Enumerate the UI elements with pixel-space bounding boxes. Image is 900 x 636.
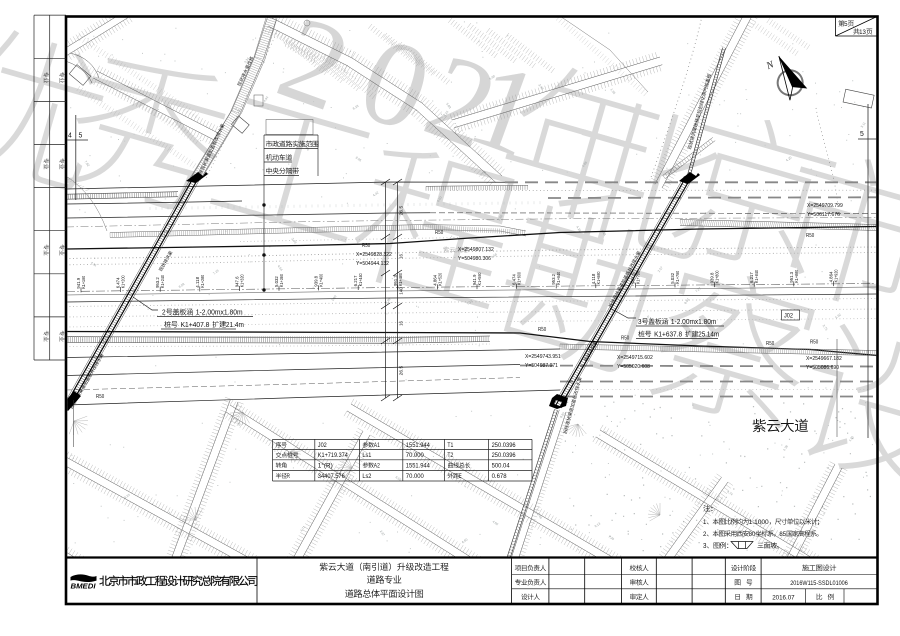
svg-text:K1+407.8: K1+407.8 bbox=[181, 320, 210, 329]
svg-text:0.678: 0.678 bbox=[492, 474, 508, 480]
svg-text:X=2549709.799: X=2549709.799 bbox=[807, 203, 843, 209]
svg-text:A2: A2 bbox=[374, 463, 381, 469]
svg-text:Y=504980.306: Y=504980.306 bbox=[458, 256, 491, 262]
svg-text:Y=505086.690: Y=505086.690 bbox=[806, 365, 839, 371]
svg-text:T1: T1 bbox=[447, 443, 454, 449]
svg-text:K1+240: K1+240 bbox=[160, 275, 165, 288]
svg-text:70.000: 70.000 bbox=[406, 474, 425, 480]
svg-text:Ls1: Ls1 bbox=[362, 453, 372, 459]
svg-text:80: 80 bbox=[749, 531, 756, 538]
svg-text:R50: R50 bbox=[806, 233, 814, 239]
svg-text:500.04: 500.04 bbox=[492, 463, 511, 469]
svg-text:70.000: 70.000 bbox=[406, 453, 425, 459]
svg-text:K1+920: K1+920 bbox=[833, 269, 838, 282]
svg-text:K1+840: K1+840 bbox=[754, 270, 759, 283]
svg-text:2016.07: 2016.07 bbox=[772, 594, 795, 601]
svg-text:2: 2 bbox=[703, 531, 707, 538]
svg-text:Y=505020.608: Y=505020.608 bbox=[617, 364, 650, 370]
svg-text:K1+680: K1+680 bbox=[596, 271, 601, 284]
svg-text:Y=504944.132: Y=504944.132 bbox=[356, 261, 389, 267]
svg-text:5: 5 bbox=[79, 131, 83, 140]
svg-text:X=2549828.322: X=2549828.322 bbox=[356, 252, 392, 258]
svg-text:R50: R50 bbox=[362, 243, 370, 249]
svg-text:K1+480: K1+480 bbox=[398, 273, 403, 286]
svg-text:Y=506117.676: Y=506117.676 bbox=[807, 212, 840, 218]
svg-text:2016W115-SSDL01006: 2016W115-SSDL01006 bbox=[790, 580, 848, 587]
svg-text:K1+600: K1+600 bbox=[517, 272, 522, 285]
svg-text:13: 13 bbox=[859, 29, 866, 36]
svg-text:5: 5 bbox=[860, 129, 864, 138]
svg-text:26.5: 26.5 bbox=[399, 365, 405, 375]
svg-text:16: 16 bbox=[399, 254, 405, 259]
svg-text:16: 16 bbox=[399, 321, 405, 326]
svg-text:K1+360: K1+360 bbox=[279, 274, 284, 287]
svg-text:R50: R50 bbox=[766, 341, 774, 347]
svg-text:K1+800: K1+800 bbox=[715, 270, 720, 283]
svg-text:R50: R50 bbox=[96, 394, 104, 400]
svg-text:21.4m: 21.4m bbox=[226, 320, 244, 329]
svg-text:R50: R50 bbox=[435, 230, 443, 236]
svg-text:X=2549715.602: X=2549715.602 bbox=[617, 355, 653, 361]
svg-text:K1+760: K1+760 bbox=[675, 270, 680, 283]
svg-text:1-2.00mx1.80m: 1-2.00mx1.80m bbox=[671, 319, 717, 326]
svg-text:R50: R50 bbox=[621, 336, 629, 342]
svg-text:X=2549807.132: X=2549807.132 bbox=[458, 247, 494, 253]
svg-text:5: 5 bbox=[844, 21, 848, 28]
svg-text:BMEDI: BMEDI bbox=[71, 582, 97, 591]
svg-text:1551.944: 1551.944 bbox=[406, 463, 431, 469]
svg-text:K1+440: K1+440 bbox=[358, 273, 363, 286]
svg-text:K1+280: K1+280 bbox=[200, 274, 205, 287]
svg-text:E: E bbox=[459, 474, 462, 480]
svg-text:85: 85 bbox=[779, 531, 786, 538]
svg-text:Y=504987.971: Y=504987.971 bbox=[525, 363, 558, 369]
svg-text::: : bbox=[710, 504, 714, 513]
svg-text:26.5: 26.5 bbox=[399, 205, 405, 215]
svg-text:250.0396: 250.0396 bbox=[492, 453, 517, 459]
svg-text:3: 3 bbox=[703, 543, 707, 550]
svg-text:K1+880: K1+880 bbox=[794, 269, 799, 282]
svg-text:X=2549743.951: X=2549743.951 bbox=[525, 354, 561, 360]
svg-text:X=2549667.182: X=2549667.182 bbox=[806, 356, 842, 362]
svg-text:K1+560: K1+560 bbox=[477, 272, 482, 285]
svg-text:K1+160: K1+160 bbox=[81, 275, 86, 288]
svg-text:4: 4 bbox=[68, 131, 72, 140]
svg-text:K1+640: K1+640 bbox=[556, 271, 561, 284]
svg-text:A1: A1 bbox=[374, 443, 381, 449]
svg-text:3: 3 bbox=[638, 319, 642, 326]
svg-text:1551.944: 1551.944 bbox=[406, 443, 431, 449]
svg-text:K1+400: K1+400 bbox=[319, 273, 324, 286]
svg-text:1-2.00mx1.80m: 1-2.00mx1.80m bbox=[196, 308, 243, 317]
svg-text:R50: R50 bbox=[538, 327, 546, 333]
svg-text:T2: T2 bbox=[447, 453, 454, 459]
svg-text:1: 1 bbox=[703, 519, 707, 526]
svg-text:J02: J02 bbox=[784, 314, 794, 320]
svg-text:25.14m: 25.14m bbox=[698, 332, 719, 339]
svg-text:K1+719.374: K1+719.374 bbox=[318, 453, 349, 459]
svg-text:R: R bbox=[287, 474, 290, 480]
svg-text:34407.576: 34407.576 bbox=[318, 474, 346, 480]
svg-text:R50: R50 bbox=[810, 340, 818, 346]
svg-text:K1+637.8: K1+637.8 bbox=[654, 332, 682, 339]
svg-text:K1+320: K1+320 bbox=[239, 274, 244, 287]
svg-text:J02: J02 bbox=[318, 443, 328, 449]
svg-text:2: 2 bbox=[162, 308, 166, 317]
svg-text:Ls2: Ls2 bbox=[362, 474, 372, 480]
svg-text:250.0396: 250.0396 bbox=[492, 443, 517, 449]
svg-text:1°(R): 1°(R) bbox=[318, 463, 333, 469]
svg-text:140: 140 bbox=[399, 287, 405, 294]
svg-text:1:1000: 1:1000 bbox=[749, 519, 769, 526]
svg-text:K1+520: K1+520 bbox=[437, 272, 442, 285]
svg-text:K1+200: K1+200 bbox=[121, 275, 126, 288]
